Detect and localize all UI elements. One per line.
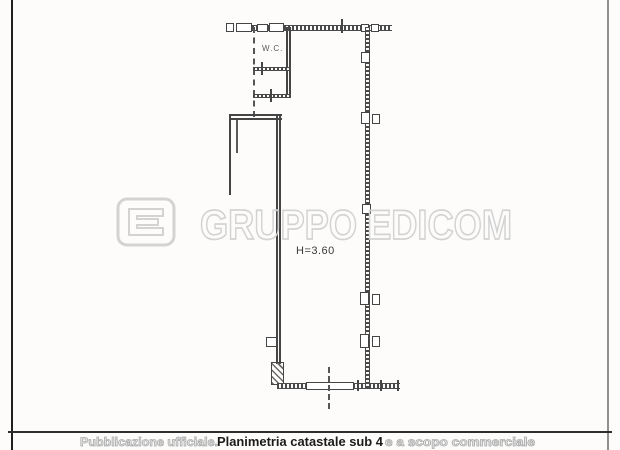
wc-right-wall	[286, 27, 291, 97]
door-tick	[261, 62, 263, 75]
window-symbol	[236, 23, 252, 32]
window-symbol	[226, 23, 234, 32]
centerline-mark	[328, 367, 330, 409]
scanned-page: W.C. H=3.60 GRUPPO EDIC	[0, 0, 620, 450]
footer-right-text: e a scopo commerciale	[385, 435, 535, 449]
window-symbol	[257, 24, 268, 32]
wc-divider-upper	[253, 67, 291, 71]
wall-tick	[341, 19, 343, 33]
wc-left-wall-line	[253, 27, 255, 117]
wc-label: W.C.	[262, 44, 283, 53]
pillar-symbol	[361, 52, 370, 63]
footer-caption: Pubblicazione ufficiale. e a scopo comme…	[0, 433, 620, 450]
pillar-symbol	[361, 112, 370, 124]
pillar-symbol	[360, 292, 369, 305]
door-tick	[270, 89, 272, 102]
pillar-symbol	[372, 294, 380, 305]
hatched-door-symbol	[271, 362, 284, 385]
room-left-wall-outer	[229, 114, 231, 195]
bottom-window-symbol	[306, 382, 354, 390]
wall-tick	[357, 380, 359, 391]
window-symbol	[371, 24, 379, 32]
footer-title: Planimetria catastale sub 4	[217, 434, 384, 449]
watermark-text: GRUPPO EDICOM	[200, 201, 512, 248]
footer-left-text: Pubblicazione ufficiale.	[80, 435, 218, 449]
window-symbol	[269, 23, 284, 32]
wall-tick	[397, 380, 399, 391]
wall-tick	[380, 380, 382, 391]
room-left-wall-inner	[236, 120, 238, 153]
flue-symbol	[266, 337, 277, 347]
pillar-symbol	[360, 334, 369, 348]
watermark: GRUPPO EDICOM	[110, 194, 520, 250]
pillar-symbol	[372, 336, 380, 347]
wc-divider-lower	[253, 94, 291, 98]
pillar-symbol	[372, 114, 380, 124]
edicom-logo-icon	[118, 199, 174, 245]
